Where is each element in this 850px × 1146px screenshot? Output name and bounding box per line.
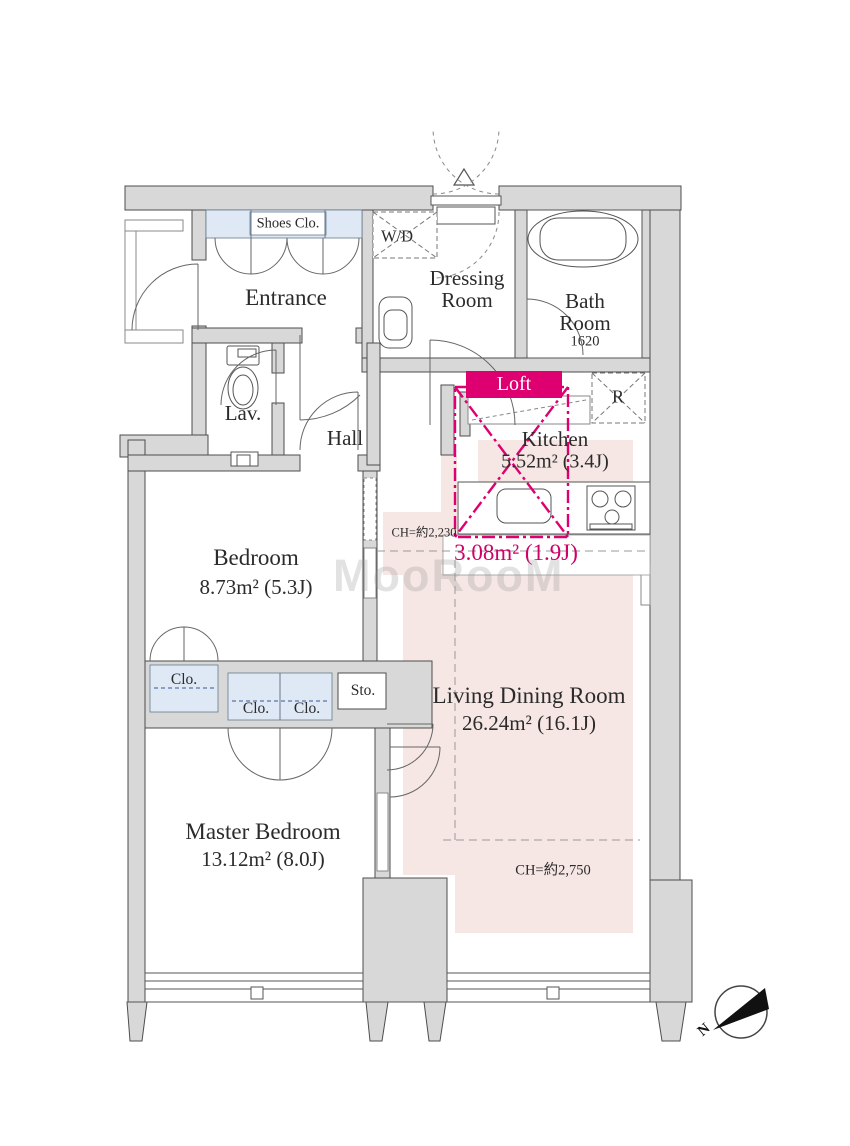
- refrigerator-label: R: [612, 388, 624, 407]
- loft-ceiling-height: CH=約2,230: [391, 526, 456, 539]
- closet-label-master-right: Clo.: [294, 701, 320, 717]
- entry-door: [431, 128, 501, 278]
- closet-label-bedroom: Clo.: [171, 672, 197, 688]
- storage-label: Sto.: [351, 683, 376, 699]
- door-triangle-icon: [454, 169, 474, 185]
- room-label-master-bedroom: Master Bedroom: [185, 820, 340, 844]
- room-label-hall: Hall: [327, 427, 363, 449]
- room-label-dressing-room: Dressing Room: [408, 267, 526, 311]
- hall-door-arc: [300, 335, 360, 420]
- columns: [127, 1002, 686, 1041]
- room-label-bath-room: Bath Room: [541, 290, 629, 334]
- closet-label-master-left: Clo.: [243, 701, 269, 717]
- compass-icon: [713, 986, 769, 1038]
- room-label-kitchen: Kitchen: [522, 428, 588, 450]
- bathtub-icon: [528, 211, 638, 267]
- lav-counter: [231, 452, 258, 466]
- floorplan: Shoes Clo. Entrance W/D Dressing Room Ba…: [0, 0, 850, 1146]
- room-label-living-dining: Living Dining Room: [433, 684, 626, 708]
- corridor-rails: [125, 220, 183, 343]
- room-label-lavatory: Lav.: [225, 402, 262, 424]
- bath-room-size: 1620: [571, 334, 600, 349]
- loft-label-chip: Loft: [466, 371, 562, 398]
- room-label-washer-dryer: W/D: [381, 227, 413, 244]
- living-dining-area: 26.24m² (16.1J): [462, 712, 596, 734]
- front-door-arc: [132, 264, 198, 330]
- kitchen-area: 5.52m² (3.4J): [501, 452, 609, 473]
- kitchen-counter: [458, 482, 650, 534]
- bedroom-area: 8.73m² (5.3J): [199, 576, 312, 598]
- watermark: MooRooM: [333, 550, 564, 602]
- living-dining-ceiling-height: CH=約2,750: [515, 863, 590, 878]
- room-label-shoes-closet: Shoes Clo.: [257, 216, 320, 231]
- room-label-bedroom: Bedroom: [213, 546, 299, 570]
- room-label-entrance: Entrance: [245, 286, 327, 310]
- master-bedroom-area: 13.12m² (8.0J): [201, 848, 325, 870]
